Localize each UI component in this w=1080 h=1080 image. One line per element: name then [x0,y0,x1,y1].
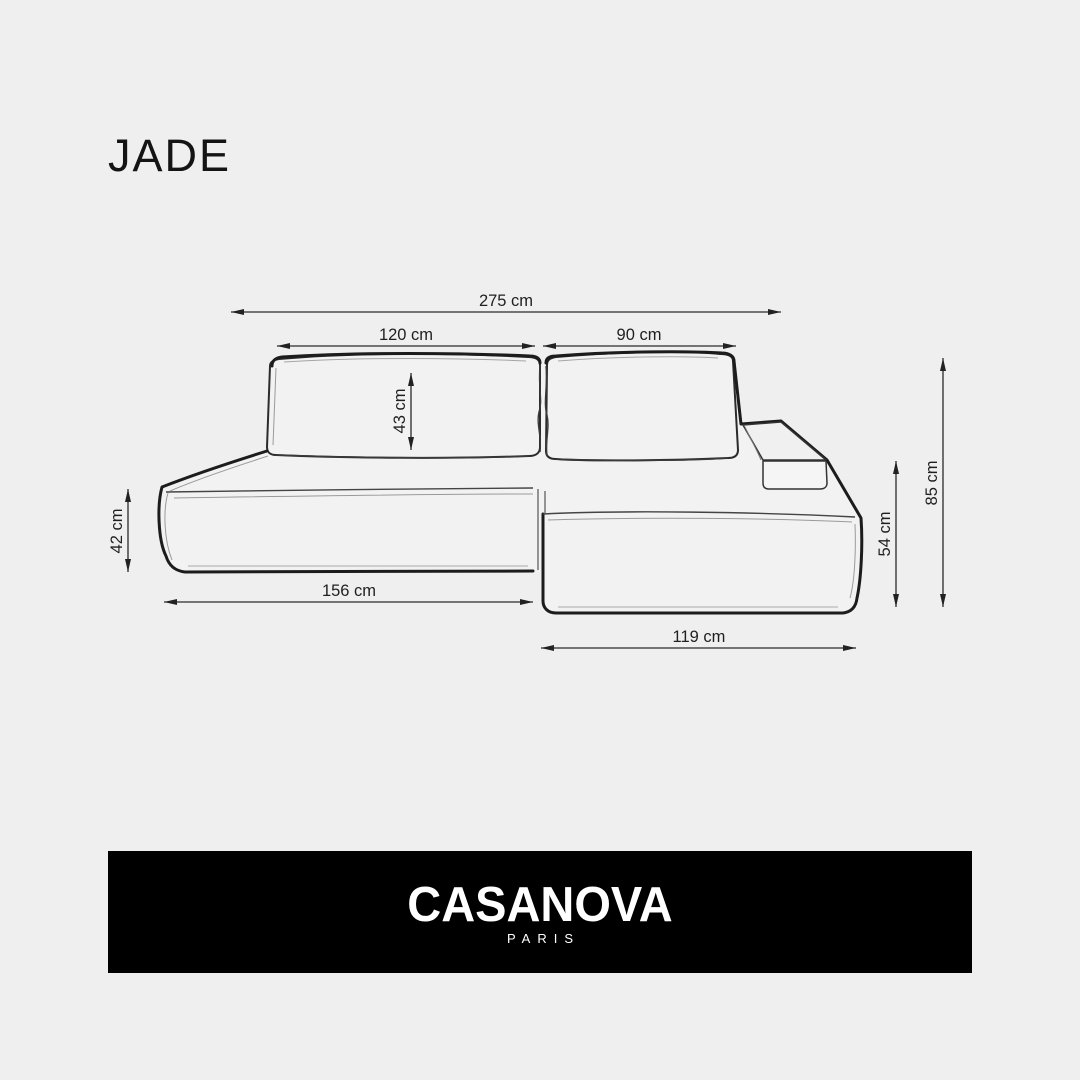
dimension-chaise-length: 119 cm [541,628,856,648]
dimension-overall-height: 85 cm [923,358,943,607]
dimension-label-chaise-length: 119 cm [673,628,726,646]
dimension-label-backrest-cushion-height: 43 cm [391,389,409,434]
product-sheet: JADE [0,0,1080,1080]
brand-banner: CASANOVA PARIS [108,851,972,973]
dimension-label-left-section-length: 156 cm [322,582,376,600]
dimension-total-width: 275 cm [231,292,781,312]
brand-logo-text: CASANOVA [407,878,672,927]
right-back-cushion [546,352,738,460]
dimension-right-seat-height: 54 cm [876,461,896,607]
dimension-label-total-width: 275 cm [479,292,533,310]
dimension-label-overall-height: 85 cm [923,461,941,506]
brand-city-text: PARIS [500,932,580,945]
dimension-label-left-seat-height: 42 cm [108,509,126,554]
dimension-left-section-length: 156 cm [164,582,533,602]
dimension-left-seat-height: 42 cm [108,489,128,572]
dimension-left-backrest-width: 120 cm [277,326,535,346]
dimension-label-right-backrest-width: 90 cm [617,326,662,344]
dimension-right-backrest-width: 90 cm [543,326,736,346]
sofa-illustration [159,352,862,613]
armrest-front-face [763,461,827,489]
dimension-label-left-backrest-width: 120 cm [379,326,433,344]
dimension-label-right-seat-height: 54 cm [876,512,894,557]
